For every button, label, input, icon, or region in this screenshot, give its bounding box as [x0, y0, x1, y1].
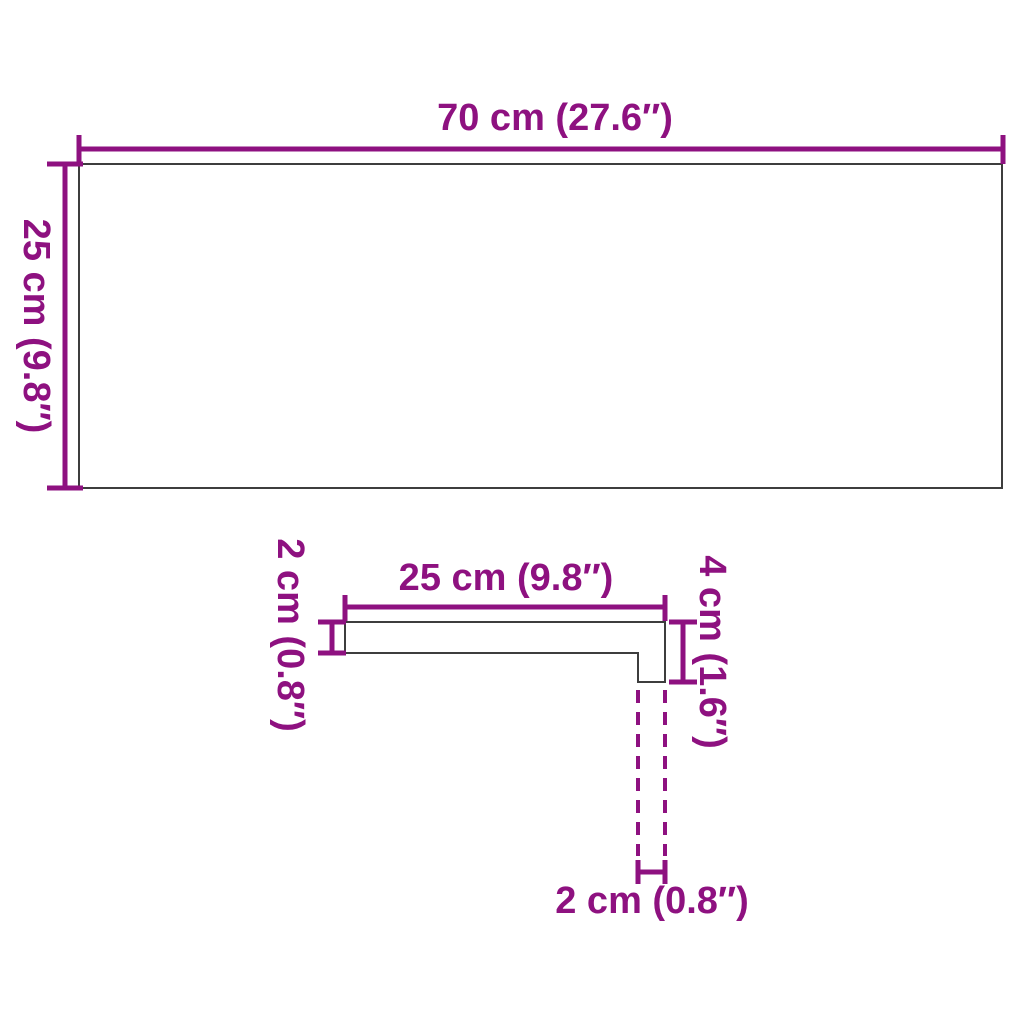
diagram-canvas: [0, 0, 1024, 1024]
profile-depth-label: 25 cm (9.8″): [399, 559, 614, 597]
profile-thickness-dimension: [318, 622, 346, 653]
top-view: [47, 135, 1003, 488]
profile-nose-dimension: [638, 690, 665, 884]
profile-nose-width-label: 2 cm (0.8″): [555, 882, 749, 920]
profile-thickness-label: 2 cm (0.8″): [271, 538, 309, 732]
profile-view: [318, 595, 697, 884]
profile-board-outline: [345, 622, 665, 682]
left-height-label: 25 cm (9.8″): [17, 219, 55, 434]
profile-front-height-label: 4 cm (1.6″): [693, 555, 731, 749]
top-width-label: 70 cm (27.6″): [437, 99, 673, 137]
top-view-board: [79, 164, 1002, 488]
top-width-dimension: [79, 135, 1003, 164]
product-dimension-diagram: 70 cm (27.6″) 25 cm (9.8″) 25 cm (9.8″) …: [0, 0, 1024, 1024]
